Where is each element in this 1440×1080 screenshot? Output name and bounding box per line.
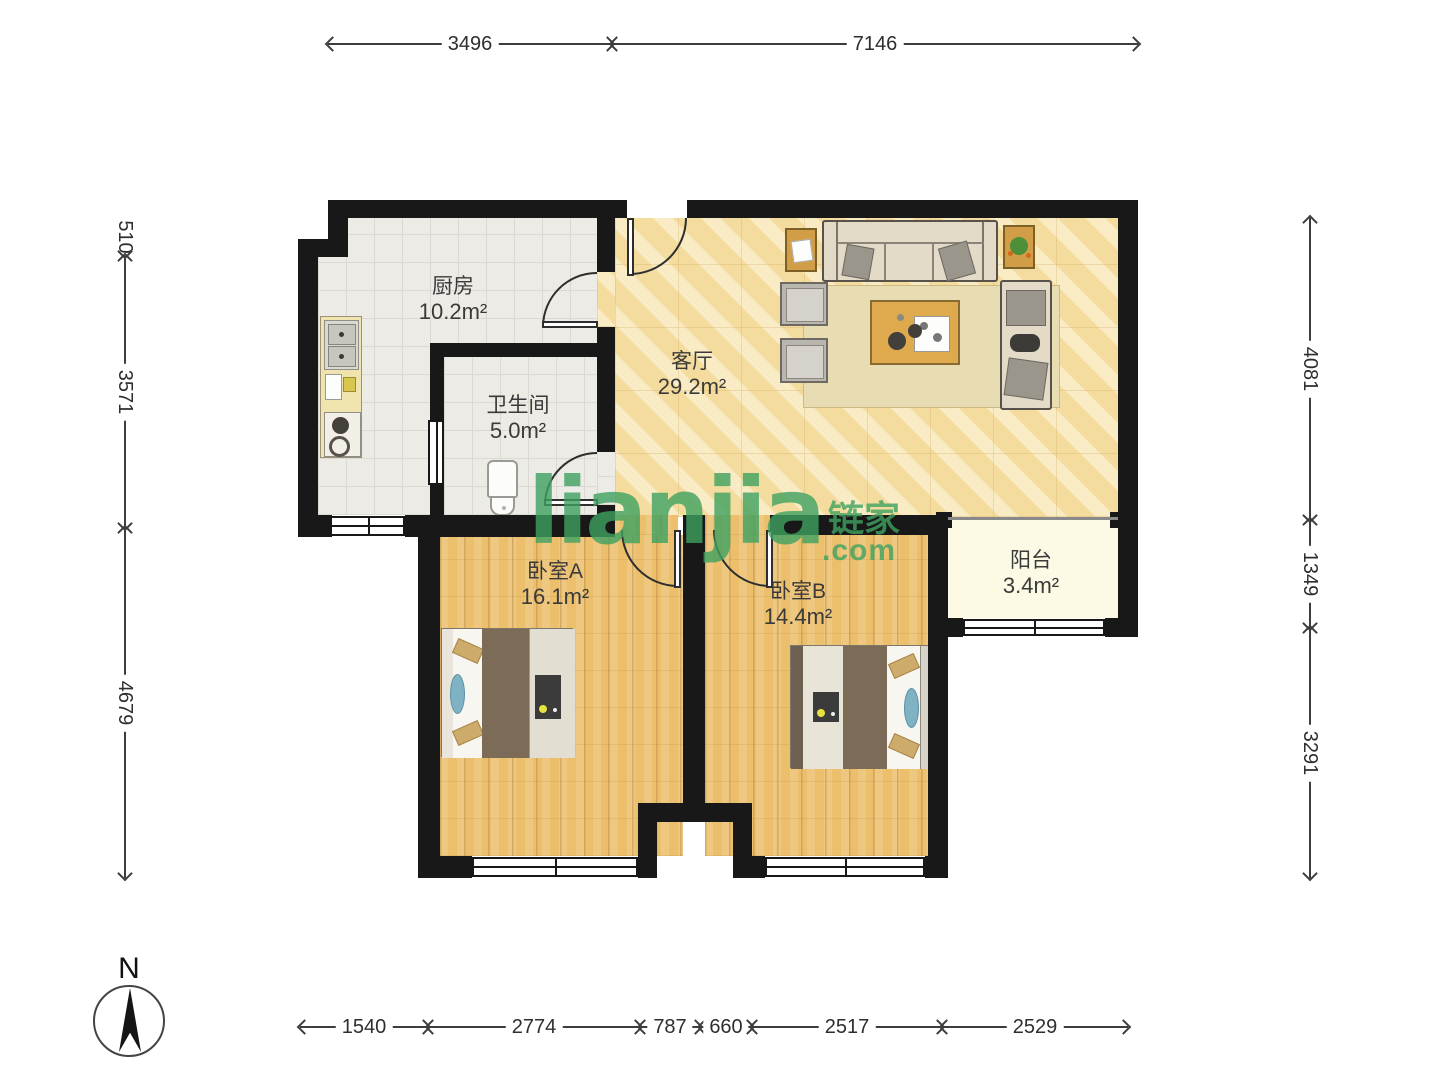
dim-label: 3291 bbox=[1299, 725, 1321, 782]
dim-label: 2517 bbox=[819, 1016, 876, 1038]
chaise-sofa bbox=[1000, 280, 1052, 410]
room-area: 10.2m² bbox=[419, 299, 487, 324]
bedroom-a-door-leaf bbox=[674, 530, 681, 588]
stove bbox=[324, 412, 361, 457]
wall-segment bbox=[418, 515, 440, 878]
dim-left-3: 4679 bbox=[124, 528, 126, 878]
room-name: 卫生间 bbox=[487, 394, 550, 418]
dim-bottom-4: 660 bbox=[700, 1026, 752, 1028]
entry-door-leaf bbox=[627, 218, 634, 276]
dim-left-1: 510 bbox=[124, 218, 126, 256]
bed-duvet bbox=[482, 629, 529, 758]
wall-segment bbox=[298, 239, 318, 537]
kitchen-door-threshold bbox=[597, 272, 615, 327]
bolster-pillow bbox=[450, 674, 465, 714]
sofa bbox=[822, 220, 998, 282]
wall-segment bbox=[687, 200, 1138, 218]
dim-top-2: 7146 bbox=[612, 43, 1138, 45]
room-area: 16.1m² bbox=[521, 584, 589, 609]
dim-label: 2774 bbox=[506, 1016, 563, 1038]
wall-segment bbox=[597, 505, 615, 537]
dim-top-1: 3496 bbox=[328, 43, 612, 45]
wall-segment bbox=[597, 327, 615, 452]
sofa-seat-gap bbox=[932, 242, 934, 280]
room-area: 3.4m² bbox=[1003, 573, 1059, 598]
kitchen-door-leaf bbox=[542, 321, 598, 328]
dim-label: 4081 bbox=[1299, 341, 1321, 398]
toilet-bowl bbox=[490, 496, 515, 516]
wall-segment bbox=[418, 856, 472, 878]
dim-label: 3496 bbox=[442, 33, 499, 55]
chaise-cushion bbox=[1004, 357, 1049, 400]
room-name: 卧室B bbox=[764, 580, 832, 604]
wall-segment bbox=[752, 856, 765, 878]
chaise-pillow bbox=[1010, 334, 1040, 352]
dim-label: 1349 bbox=[1299, 546, 1321, 603]
chaise-cushion bbox=[1006, 290, 1046, 326]
teacup bbox=[908, 324, 922, 338]
book-stack bbox=[791, 239, 814, 264]
wall-segment bbox=[928, 520, 948, 878]
balcony-wall-stub bbox=[936, 512, 952, 528]
dim-left-2: 3571 bbox=[124, 256, 126, 528]
room-area: 14.4m² bbox=[764, 604, 832, 629]
dim-bottom-6: 2529 bbox=[942, 1026, 1128, 1028]
sofa-armrest-line bbox=[982, 222, 984, 280]
bed-tray bbox=[535, 675, 561, 719]
dim-label: 1540 bbox=[336, 1016, 393, 1038]
sofa-armrest-line bbox=[836, 222, 838, 280]
sofa-pillow bbox=[938, 241, 976, 282]
bedroom-b-window bbox=[765, 857, 925, 877]
armchair bbox=[780, 282, 828, 326]
dim-right-3: 3291 bbox=[1309, 628, 1311, 878]
coffee-table bbox=[870, 300, 960, 365]
dim-bottom-3: 787 bbox=[640, 1026, 700, 1028]
bathroom-door-threshold bbox=[597, 452, 615, 505]
dish-rack bbox=[325, 374, 342, 400]
dim-right-2: 1349 bbox=[1309, 520, 1311, 628]
side-table-left bbox=[785, 228, 817, 272]
room-label-bedroom-a: 卧室A 16.1m² bbox=[521, 560, 589, 609]
balcony-wall-stub bbox=[1110, 512, 1126, 528]
wall-segment bbox=[430, 343, 597, 357]
armchair bbox=[780, 338, 828, 383]
sofa-pillow bbox=[841, 244, 874, 280]
kettle bbox=[329, 436, 350, 457]
wall-segment bbox=[683, 515, 705, 803]
room-label-kitchen: 厨房 10.2m² bbox=[419, 275, 487, 324]
kitchen-counter bbox=[320, 316, 362, 458]
sofa-seat-gap bbox=[884, 242, 886, 280]
compass-north-label: N bbox=[118, 952, 140, 986]
plant-accent bbox=[1008, 251, 1013, 256]
wall-segment bbox=[770, 515, 938, 535]
toilet-tank bbox=[487, 460, 518, 498]
dim-bottom-1: 1540 bbox=[300, 1026, 428, 1028]
dim-label: 660 bbox=[703, 1016, 748, 1038]
dim-label: 7146 bbox=[847, 33, 904, 55]
dim-right-1: 4081 bbox=[1309, 218, 1311, 520]
teacup-small bbox=[897, 314, 904, 321]
balcony-window bbox=[963, 619, 1105, 636]
bolster-pillow bbox=[904, 688, 919, 728]
plant-accent bbox=[1026, 253, 1031, 258]
bed-tray bbox=[813, 692, 839, 722]
room-label-bathroom: 卫生间 5.0m² bbox=[487, 394, 550, 443]
wall-segment bbox=[733, 803, 752, 878]
kitchen-sink bbox=[324, 320, 359, 370]
bed-a bbox=[441, 628, 573, 757]
dim-label: 4679 bbox=[114, 675, 136, 732]
wall-segment bbox=[1118, 200, 1138, 637]
dim-label: 787 bbox=[647, 1016, 692, 1038]
room-name: 阳台 bbox=[1003, 549, 1059, 573]
room-name: 客厅 bbox=[658, 350, 726, 374]
dim-bottom-2: 2774 bbox=[428, 1026, 640, 1028]
bathroom-window bbox=[428, 420, 444, 485]
teacup bbox=[888, 332, 906, 350]
dim-label: 2529 bbox=[1007, 1016, 1064, 1038]
wall-segment bbox=[298, 515, 332, 537]
side-table-right bbox=[1003, 225, 1035, 269]
dim-bottom-5: 2517 bbox=[752, 1026, 942, 1028]
wall-segment bbox=[597, 218, 615, 272]
room-label-balcony: 阳台 3.4m² bbox=[1003, 549, 1059, 598]
room-name: 厨房 bbox=[419, 275, 487, 299]
balcony-boundary-line bbox=[948, 517, 1118, 520]
bedroom-a-window bbox=[472, 857, 638, 877]
room-label-living: 客厅 29.2m² bbox=[658, 350, 726, 399]
room-area: 29.2m² bbox=[658, 374, 726, 399]
bathroom-door-leaf bbox=[544, 499, 598, 506]
wall-segment bbox=[938, 618, 963, 637]
room-label-bedroom-b: 卧室B 14.4m² bbox=[764, 580, 832, 629]
cutting-board bbox=[343, 377, 356, 392]
wall-segment bbox=[328, 200, 627, 218]
wall-segment bbox=[430, 485, 444, 515]
bed-b bbox=[790, 645, 928, 768]
bed-footboard bbox=[791, 646, 803, 769]
burner bbox=[332, 417, 349, 434]
room-name: 卧室A bbox=[521, 560, 589, 584]
bed-duvet bbox=[843, 646, 887, 769]
dim-label: 3571 bbox=[114, 364, 136, 421]
wall-segment bbox=[430, 343, 444, 420]
kitchen-window bbox=[330, 516, 405, 536]
room-area: 5.0m² bbox=[487, 418, 550, 443]
floor-plan-canvas: 3496 7146 1540 2774 787 660 2517 2529 51… bbox=[0, 0, 1440, 1080]
